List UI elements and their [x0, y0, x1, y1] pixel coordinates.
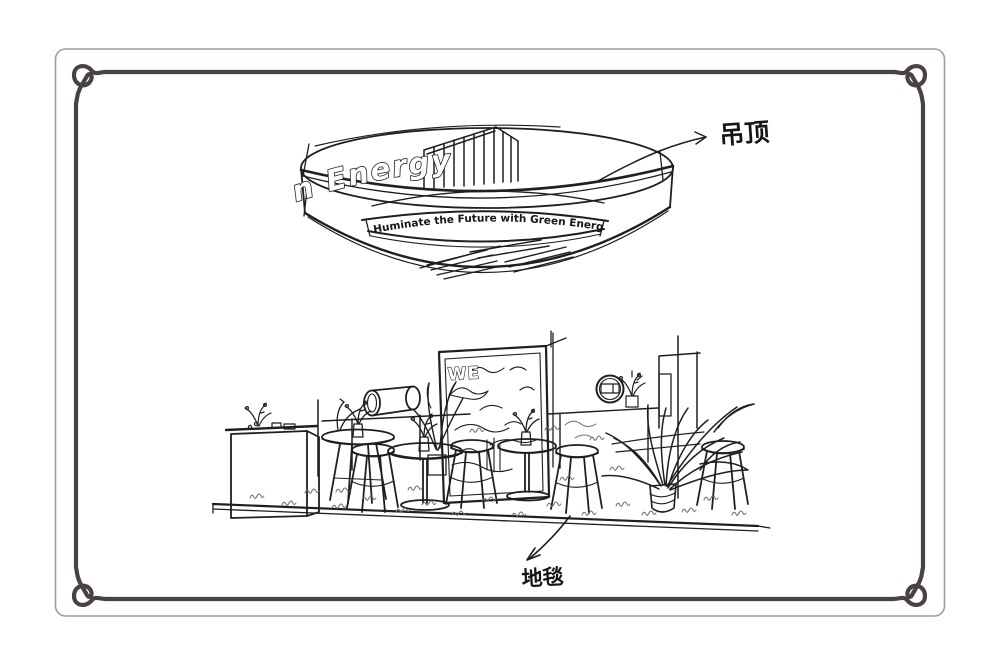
corner-loop-ornament	[74, 66, 106, 104]
wall-circle-plate	[597, 376, 624, 403]
ink-drawing: 吊顶	[0, 0, 770, 591]
ceiling-ring-sketch	[301, 125, 673, 279]
corner-loop-ornament	[74, 567, 106, 605]
roll-cylinder	[364, 387, 420, 416]
arrowhead-icon	[527, 548, 540, 560]
carpet-label: 地毯	[521, 565, 564, 591]
wall-shelf	[548, 371, 658, 468]
poster-text: WE	[447, 363, 480, 385]
poster-board: WE	[439, 331, 566, 503]
booth-sketch: WE	[213, 331, 770, 531]
decorative-frame	[56, 49, 945, 616]
ceiling-arrow	[598, 137, 706, 181]
carpet-annotation: 地毯	[521, 516, 570, 591]
bar-stool	[551, 445, 602, 513]
reception-counter	[226, 403, 319, 518]
ceiling-label: 吊顶	[718, 118, 770, 150]
floor-edge	[213, 504, 770, 531]
sketch-canvas: 吊顶	[0, 0, 1000, 670]
counter-items	[245, 403, 295, 429]
ceiling-annotation: 吊顶	[598, 118, 770, 181]
corner-loop-ornament	[893, 66, 925, 104]
small-sapling	[337, 399, 360, 430]
plant-pot	[650, 484, 676, 512]
booth-concept-sketch: 吊顶	[0, 0, 1000, 670]
corner-loop-ornament	[893, 567, 925, 605]
outer-border	[56, 49, 945, 616]
inner-border	[74, 66, 925, 605]
